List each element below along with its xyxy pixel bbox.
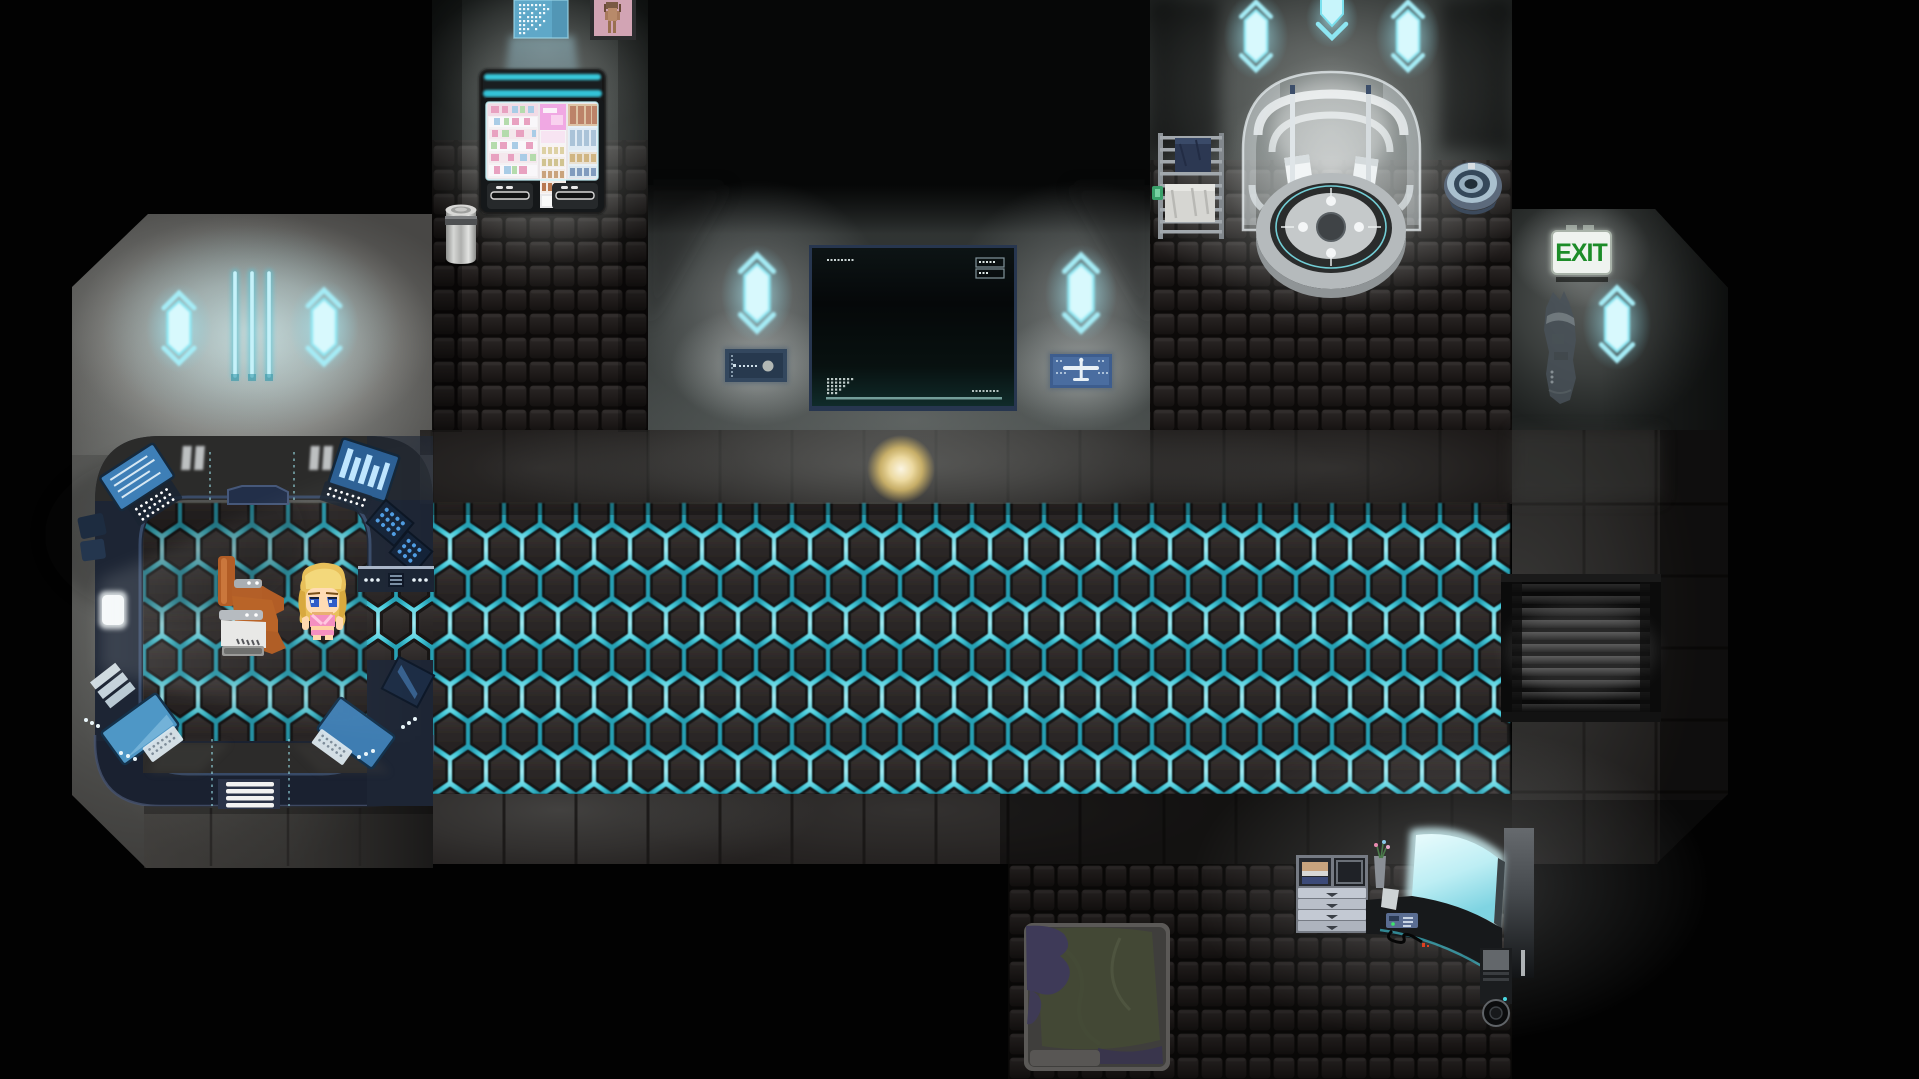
svg-text:EXIT: EXIT [1555, 239, 1607, 267]
